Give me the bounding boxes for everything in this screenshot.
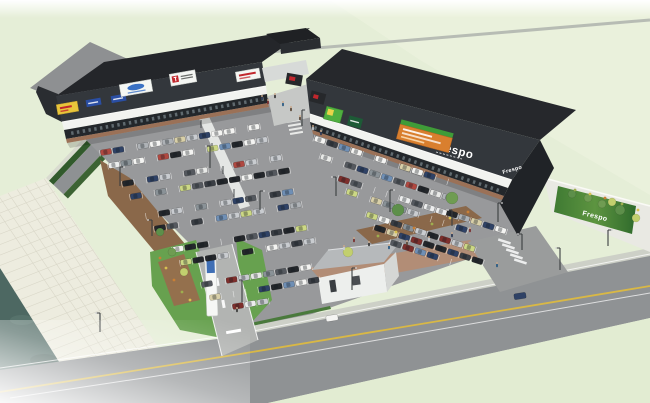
pedestrian	[428, 236, 430, 241]
pedestrian	[320, 130, 322, 135]
flower-dot	[449, 217, 452, 220]
monument-pylon-blue-panel	[206, 260, 214, 273]
tree	[392, 204, 404, 216]
tree	[584, 194, 592, 202]
pedestrian	[236, 307, 238, 312]
pedestrian	[496, 262, 498, 267]
flower-dot	[467, 211, 470, 214]
pedestrian	[469, 227, 471, 232]
pedestrian	[274, 93, 276, 98]
pedestrian	[312, 125, 314, 130]
pedestrian	[261, 95, 263, 100]
flower-dot	[189, 299, 192, 302]
pedestrian	[282, 101, 284, 106]
tree	[608, 198, 616, 206]
pedestrian	[299, 115, 301, 120]
tree	[446, 192, 458, 204]
flower-dot	[413, 227, 416, 230]
pedestrian	[353, 237, 355, 242]
pedestrian	[267, 99, 269, 104]
flower-dot	[159, 257, 162, 260]
rendering-canvas: Frespo	[0, 0, 650, 403]
pedestrian	[343, 245, 345, 250]
tree	[168, 248, 176, 256]
flower-dot	[604, 197, 607, 200]
flower-dot	[621, 203, 624, 206]
flower-dot	[165, 267, 168, 270]
pad-window	[351, 275, 360, 285]
flower-dot	[431, 223, 434, 226]
flower-dot	[589, 193, 592, 196]
pedestrian	[290, 106, 292, 111]
top-fade	[0, 0, 650, 18]
pedestrian	[406, 240, 408, 245]
tree	[615, 205, 625, 215]
flower-dot	[181, 291, 184, 294]
flower-dot	[377, 235, 380, 238]
flower-dot	[173, 279, 176, 282]
corner-fade	[0, 320, 250, 403]
tree	[632, 214, 640, 222]
shopping-center-rendering: Frespo	[0, 0, 650, 403]
tree	[180, 268, 188, 276]
flower-dot	[637, 209, 640, 212]
tree	[156, 228, 164, 236]
flower-dot	[395, 231, 398, 234]
pedestrian	[368, 241, 370, 246]
pedestrian	[451, 232, 453, 237]
flower-dot	[574, 189, 577, 192]
tree	[598, 200, 606, 208]
pedestrian	[388, 244, 390, 249]
